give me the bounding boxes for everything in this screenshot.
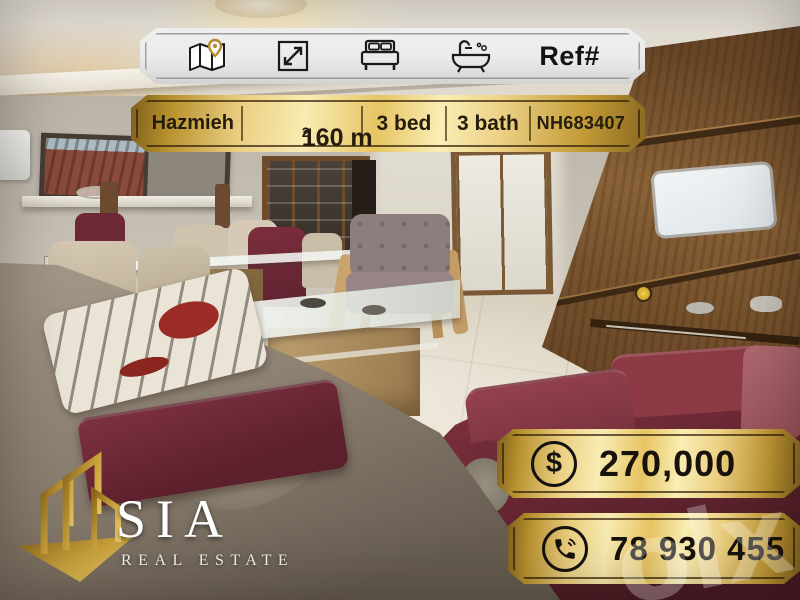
price-value: 270,000 — [599, 443, 736, 485]
decor-bowl — [686, 302, 714, 314]
bedrooms-label: 3 bed — [363, 112, 445, 136]
icon-banner: Ref# — [140, 28, 645, 84]
bed-icon — [357, 38, 403, 74]
brand-name: SIA — [116, 488, 233, 550]
ashtray — [362, 305, 386, 315]
decor-glass — [750, 296, 782, 312]
listing-photo: Ref# Hazmieh 160 m2 3 bed 3 bath NH68340… — [0, 0, 800, 600]
bathrooms-label: 3 bath — [447, 112, 529, 136]
dimensions-icon — [274, 37, 312, 75]
bath-icon — [448, 37, 494, 75]
divider — [445, 106, 447, 141]
location-label: Hazmieh — [145, 112, 241, 135]
decor-disc — [635, 285, 652, 302]
armchair-back — [350, 214, 450, 278]
unit-mirror-inset — [650, 161, 777, 239]
divider — [529, 106, 531, 141]
dollar-icon: $ — [531, 441, 577, 487]
brand-tagline: REAL ESTATE — [121, 552, 294, 570]
divider — [241, 106, 243, 141]
ac-unit — [0, 130, 30, 180]
details-banner: Hazmieh 160 m2 3 bed 3 bath NH683407 — [131, 95, 645, 152]
reference-code: NH683407 — [531, 113, 631, 134]
phone-icon — [542, 526, 588, 572]
ashtray — [300, 298, 326, 308]
sofa-cushion-pink — [740, 345, 800, 439]
reference-label: Ref# — [539, 41, 600, 72]
map-location-icon — [185, 37, 229, 75]
